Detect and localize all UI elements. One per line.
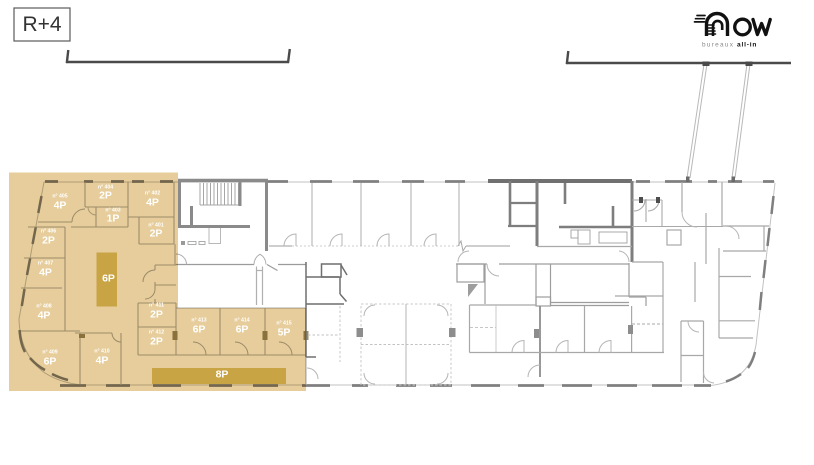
svg-text:2P: 2P [150, 309, 163, 321]
svg-text:6P: 6P [102, 273, 115, 285]
svg-text:all-in: all-in [737, 42, 757, 49]
svg-text:2P: 2P [99, 190, 112, 202]
svg-text:4P: 4P [38, 310, 51, 322]
svg-text:2P: 2P [42, 235, 55, 247]
svg-text:4P: 4P [146, 197, 159, 209]
svg-text:5P: 5P [278, 327, 291, 339]
svg-text:2P: 2P [150, 336, 163, 348]
svg-text:4P: 4P [96, 355, 109, 367]
svg-text:1P: 1P [107, 213, 120, 225]
svg-text:8P: 8P [216, 369, 229, 381]
svg-text:6P: 6P [44, 356, 57, 368]
svg-text:R+4: R+4 [22, 13, 61, 36]
svg-text:6P: 6P [236, 324, 249, 336]
svg-text:6P: 6P [193, 324, 206, 336]
svg-text:2P: 2P [150, 228, 163, 240]
svg-text:4P: 4P [54, 200, 67, 212]
svg-text:bureaux: bureaux [702, 42, 734, 49]
svg-text:4P: 4P [39, 267, 52, 279]
